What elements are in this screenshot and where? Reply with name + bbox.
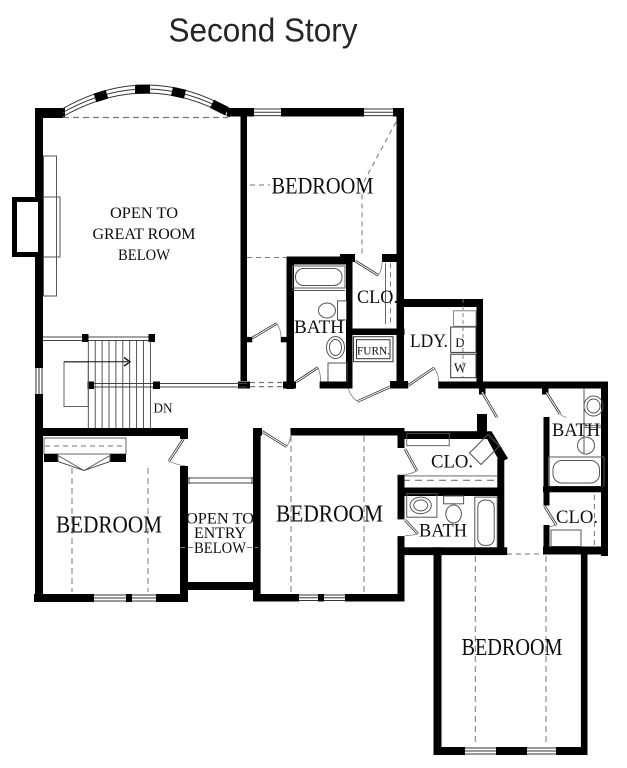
svg-text:BEDROOM: BEDROOM bbox=[56, 513, 162, 539]
svg-text:CLO.: CLO. bbox=[357, 288, 398, 308]
svg-text:LDY.: LDY. bbox=[410, 331, 448, 352]
svg-text:BELOW: BELOW bbox=[194, 540, 247, 557]
svg-text:CLO.: CLO. bbox=[431, 453, 473, 473]
svg-text:BATH: BATH bbox=[552, 421, 600, 441]
svg-text:W: W bbox=[454, 360, 467, 375]
svg-text:BATH: BATH bbox=[294, 318, 344, 338]
svg-text:BEDROOM: BEDROOM bbox=[462, 635, 563, 661]
svg-text:FURN.: FURN. bbox=[357, 344, 390, 358]
svg-text:BELOW: BELOW bbox=[118, 247, 171, 264]
svg-text:OPEN TO: OPEN TO bbox=[110, 205, 178, 222]
svg-text:BEDROOM: BEDROOM bbox=[272, 174, 374, 199]
svg-text:DN: DN bbox=[154, 401, 173, 416]
svg-text:BATH: BATH bbox=[419, 522, 467, 542]
svg-text:Second Story: Second Story bbox=[169, 12, 358, 49]
svg-text:GREAT ROOM: GREAT ROOM bbox=[93, 226, 196, 243]
svg-text:BEDROOM: BEDROOM bbox=[276, 502, 383, 528]
svg-text:CLO.: CLO. bbox=[556, 508, 598, 528]
